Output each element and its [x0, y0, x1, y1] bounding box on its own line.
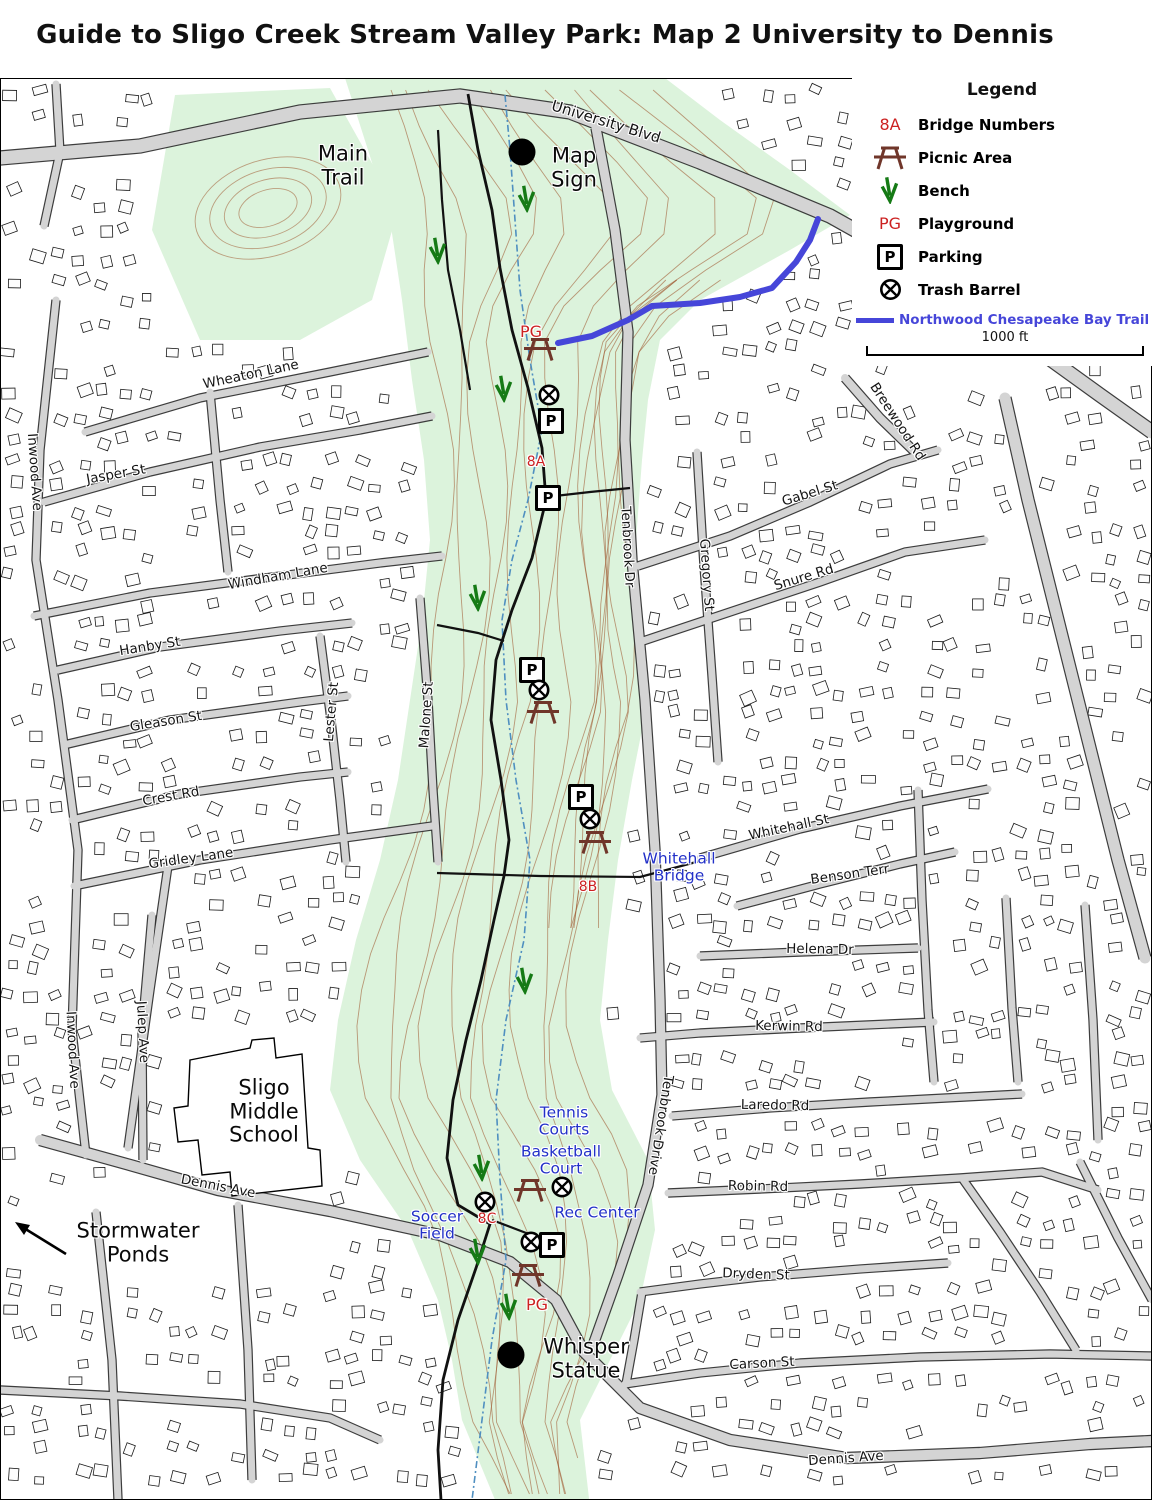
legend-row-parking: PParking: [862, 244, 1152, 269]
trash-barrel-icon: [550, 1175, 575, 1204]
annotation-label: Main Trail: [318, 142, 368, 189]
annotation-label: Sligo Middle School: [229, 1077, 299, 1148]
street-label: Tenbrook Drive: [645, 1074, 676, 1176]
legend-panel: Legend 8ABridge NumbersPicnic AreaBenchP…: [852, 74, 1152, 366]
map-canvas: University BlvdWheaton LaneInwood AveJas…: [0, 0, 1152, 1507]
street-label: Gleason St: [129, 709, 203, 735]
street-label: Jasper St: [85, 462, 147, 487]
legend-title: Legend: [852, 80, 1152, 100]
street-label: Robin Rd: [728, 1179, 788, 1195]
parking-icon: P: [535, 485, 561, 511]
legend-row-trash-barrel: Trash Barrel: [862, 277, 1152, 302]
bench-icon: [862, 177, 918, 204]
street-label: Gregory St: [696, 538, 716, 611]
picnic-area-icon: [862, 144, 918, 171]
picnic-area-icon: [522, 336, 558, 367]
street-label: Breewood Rd: [866, 380, 927, 463]
playground-icon: PG: [862, 214, 918, 233]
bench-icon: [466, 585, 490, 616]
bridge-number-icon: 8A: [862, 115, 918, 134]
street-label: Gridley Lane: [148, 846, 235, 873]
street-label: Lester St: [322, 681, 342, 742]
trash-barrel-icon: [862, 277, 918, 302]
map-page: Guide to Sligo Creek Stream Valley Park:…: [0, 0, 1152, 1507]
street-label: Windham Lane: [227, 561, 329, 593]
landmark-label: Whisper Statue: [543, 1335, 629, 1382]
street-label: Gabel St: [780, 478, 839, 509]
scale-label: 1000 ft: [866, 330, 1144, 345]
bridge-number-label: 8B: [579, 880, 598, 896]
bench-icon: [492, 376, 516, 407]
bench-icon: [466, 1239, 490, 1270]
picnic-area-icon: [525, 699, 561, 730]
legend-row-picnic-area: Picnic Area: [862, 145, 1152, 170]
street-label: Inwood Ave: [24, 433, 44, 512]
scale-line: [866, 346, 1144, 356]
street-label: Snure Rd: [772, 562, 835, 594]
landmark-dot: [509, 139, 536, 166]
bench-icon: [515, 186, 539, 217]
picnic-area-icon: [577, 829, 613, 860]
landmark-label: Map Sign: [551, 144, 597, 191]
street-label: Dennis Ave: [808, 1449, 885, 1469]
street-label: Hanby St: [118, 635, 181, 660]
street-label: Kerwin Rd: [755, 1019, 823, 1035]
street-label: Helena Dr: [786, 942, 854, 958]
street-label: Carson St: [729, 1355, 795, 1374]
poi-label: Rec Center: [554, 1204, 639, 1221]
legend-item-label: Parking: [918, 248, 983, 266]
street-label: Malone St: [417, 681, 437, 749]
landmark-dot: [498, 1342, 525, 1369]
legend-row-bridge-number: 8ABridge Numbers: [862, 112, 1152, 137]
picnic-area-icon: [512, 1177, 548, 1208]
trash-barrel-icon: [519, 1230, 544, 1259]
bench-icon: [426, 238, 450, 269]
legend-item-label: Playground: [918, 215, 1014, 233]
street-label: Julep Ave: [133, 1001, 151, 1064]
scale-bar: 1000 ft: [866, 330, 1144, 356]
legend-item-label: Bridge Numbers: [918, 116, 1055, 134]
legend-item-label: Picnic Area: [918, 149, 1012, 167]
legend-trail-row: Northwood Chesapeake Bay Trail: [856, 312, 1152, 328]
bridge-number-label: 8A: [527, 455, 545, 471]
poi-label: Basketball Court: [521, 1144, 601, 1179]
trail-line-swatch: [856, 318, 894, 323]
street-label: University Blvd: [549, 97, 662, 146]
street-label: Wheaton Lane: [202, 357, 301, 392]
legend-item-label: Trash Barrel: [918, 281, 1021, 299]
street-label: Tenbrook Dr: [617, 506, 636, 588]
parking-icon: P: [862, 244, 918, 270]
street-label: Dryden St: [722, 1266, 790, 1283]
poi-label: Whitehall Bridge: [642, 851, 715, 886]
street-label: Dennis Ave: [179, 1172, 256, 1201]
parking-icon: P: [538, 408, 564, 434]
legend-items: 8ABridge NumbersPicnic AreaBenchPGPlaygr…: [852, 112, 1152, 302]
picnic-area-icon: [510, 1262, 546, 1293]
bench-icon: [497, 1294, 521, 1325]
bench-icon: [513, 968, 537, 999]
legend-item-label: Bench: [918, 182, 970, 200]
street-label: Whitehall St: [747, 812, 830, 844]
playground-label: PG: [526, 1296, 548, 1314]
annotation-label: Stormwater Ponds: [77, 1219, 200, 1266]
trash-barrel-icon: [473, 1190, 498, 1219]
street-label: Crest Rd: [141, 785, 200, 810]
street-label: Laredo Rd: [741, 1098, 810, 1114]
legend-trail-label: Northwood Chesapeake Bay Trail: [899, 312, 1149, 328]
bench-icon: [470, 1155, 494, 1186]
street-label: Benson Terr: [810, 862, 891, 888]
poi-label: Soccer Field: [411, 1209, 463, 1244]
legend-row-playground: PGPlayground: [862, 211, 1152, 236]
trash-barrel-icon: [537, 383, 562, 412]
legend-row-bench: Bench: [862, 178, 1152, 203]
street-label: Inwood Ave: [62, 1011, 81, 1089]
poi-label: Tennis Courts: [539, 1105, 590, 1140]
